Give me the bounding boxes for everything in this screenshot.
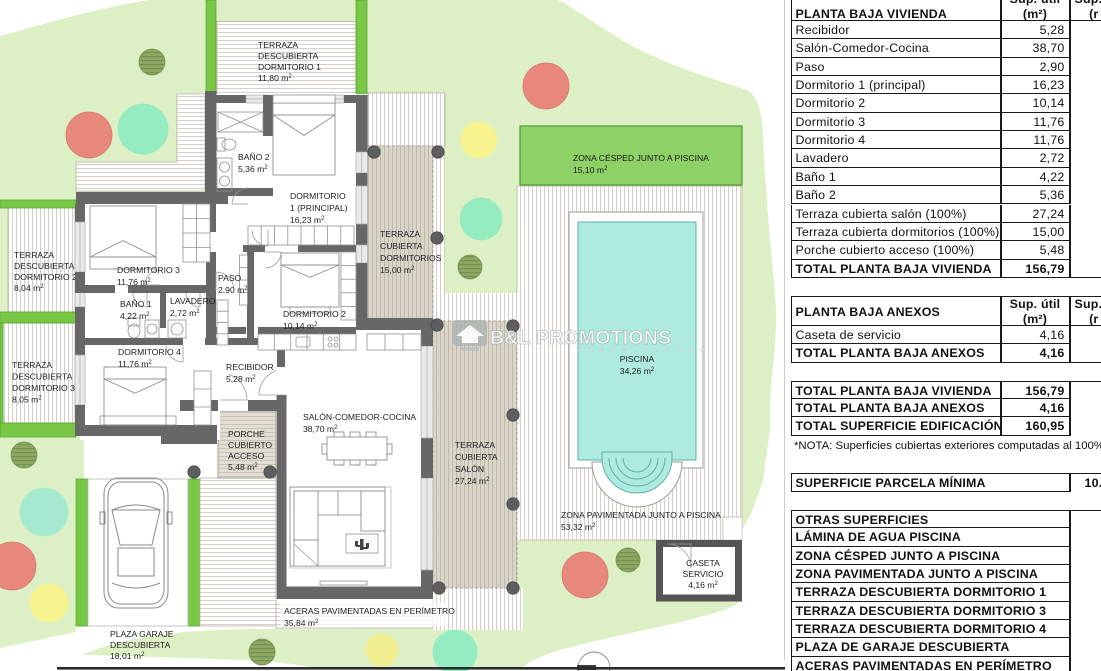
svg-text:ZONA CÉSPED JUNTO A PISCINA: ZONA CÉSPED JUNTO A PISCINA [573, 153, 709, 163]
svg-text:TERRAZA: TERRAZA [380, 229, 420, 239]
svg-text:DESCUBIERTA: DESCUBIERTA [258, 51, 319, 61]
svg-text:CUBIERTA: CUBIERTA [455, 452, 498, 462]
svg-text:35,84 m2: 35,84 m2 [284, 618, 319, 628]
svg-text:SALÓN: SALÓN [455, 464, 484, 474]
svg-text:PLAZA GARAJE: PLAZA GARAJE [110, 629, 174, 639]
svg-text:8,04 m2: 8,04 m2 [14, 283, 44, 293]
svg-text:5,28 m2: 5,28 m2 [226, 374, 256, 384]
svg-text:CUBIERTA: CUBIERTA [380, 241, 423, 251]
svg-text:ACERAS PAVIMENTADAS EN PERÍMET: ACERAS PAVIMENTADAS EN PERÍMETRO [284, 606, 455, 616]
svg-text:P L A Y A B L A N C A: P L A Y A B L A N C A [578, 348, 707, 354]
svg-text:34,26 m2: 34,26 m2 [620, 366, 655, 376]
svg-text:2,72 m2: 2,72 m2 [170, 308, 200, 318]
svg-text:CUBIERTO: CUBIERTO [228, 440, 272, 450]
svg-text:DORMITORIO 1: DORMITORIO 1 [258, 62, 321, 72]
svg-text:DORMITORIO 2: DORMITORIO 2 [283, 309, 346, 319]
svg-text:CASETA: CASETA [686, 558, 720, 568]
svg-text:4,22 m2: 4,22 m2 [120, 311, 150, 321]
svg-text:4,16 m2: 4,16 m2 [688, 580, 718, 590]
svg-text:SALÓN-COMEDOR-COCINA: SALÓN-COMEDOR-COCINA [303, 412, 416, 422]
svg-text:DORMITORIOS: DORMITORIOS [380, 253, 442, 263]
svg-text:11,76 m2: 11,76 m2 [117, 277, 151, 287]
svg-text:TERRAZA: TERRAZA [455, 440, 495, 450]
svg-text:RECIBIDOR: RECIBIDOR [226, 362, 274, 372]
svg-text:11,80 m2: 11,80 m2 [258, 73, 292, 83]
svg-text:ACCESO: ACCESO [228, 451, 265, 461]
svg-text:16,23 m2: 16,23 m2 [290, 215, 325, 225]
svg-text:BAÑO 1: BAÑO 1 [120, 299, 152, 309]
svg-text:8,05 m2: 8,05 m2 [12, 395, 42, 405]
svg-text:11,76 m2: 11,76 m2 [118, 359, 152, 369]
svg-text:53,32 m2: 53,32 m2 [561, 522, 596, 532]
svg-text:DORMITORIO 2: DORMITORIO 2 [14, 272, 77, 282]
svg-text:DORMITORIO: DORMITORIO [290, 191, 346, 201]
svg-text:TERRAZA: TERRAZA [14, 250, 54, 260]
svg-text:ZONA PAVIMENTADA JUNTO A PISCI: ZONA PAVIMENTADA JUNTO A PISCINA [561, 510, 721, 520]
svg-text:DORMITORIO 4: DORMITORIO 4 [118, 347, 181, 357]
svg-text:PASO: PASO [218, 273, 242, 283]
svg-text:18,01 m2: 18,01 m2 [110, 651, 145, 661]
svg-text:DESCUBIERTA: DESCUBIERTA [110, 640, 171, 650]
svg-text:15,10 m2: 15,10 m2 [573, 165, 608, 175]
svg-text:2,90 m2: 2,90 m2 [218, 285, 248, 295]
svg-text:PISCINA: PISCINA [620, 354, 655, 364]
svg-text:DESCUBIERTA: DESCUBIERTA [14, 261, 75, 271]
svg-text:DESCUBIERTA: DESCUBIERTA [12, 372, 73, 382]
svg-text:B&L PROMOTIONS: B&L PROMOTIONS [490, 327, 671, 349]
svg-text:38,70 m2: 38,70 m2 [303, 424, 338, 434]
svg-text:DORMITORIO 3: DORMITORIO 3 [117, 265, 180, 275]
svg-text:10,14 m2: 10,14 m2 [283, 321, 318, 331]
svg-text:27,24 m2: 27,24 m2 [455, 476, 490, 486]
svg-text:TERRAZA: TERRAZA [258, 40, 298, 50]
svg-text:SERVICIO: SERVICIO [683, 569, 724, 579]
svg-text:5,36 m2: 5,36 m2 [238, 164, 268, 174]
svg-text:BAÑO 2: BAÑO 2 [238, 152, 270, 162]
svg-text:15,00 m2: 15,00 m2 [380, 265, 415, 275]
svg-text:TERRAZA: TERRAZA [12, 360, 52, 370]
svg-text:PORCHE: PORCHE [228, 429, 265, 439]
svg-text:LAVADERO: LAVADERO [170, 296, 216, 306]
svg-text:DORMITORIO 3: DORMITORIO 3 [12, 383, 75, 393]
svg-text:5,48 m2: 5,48 m2 [228, 462, 258, 472]
svg-text:1 (PRINCIPAL): 1 (PRINCIPAL) [290, 203, 348, 213]
